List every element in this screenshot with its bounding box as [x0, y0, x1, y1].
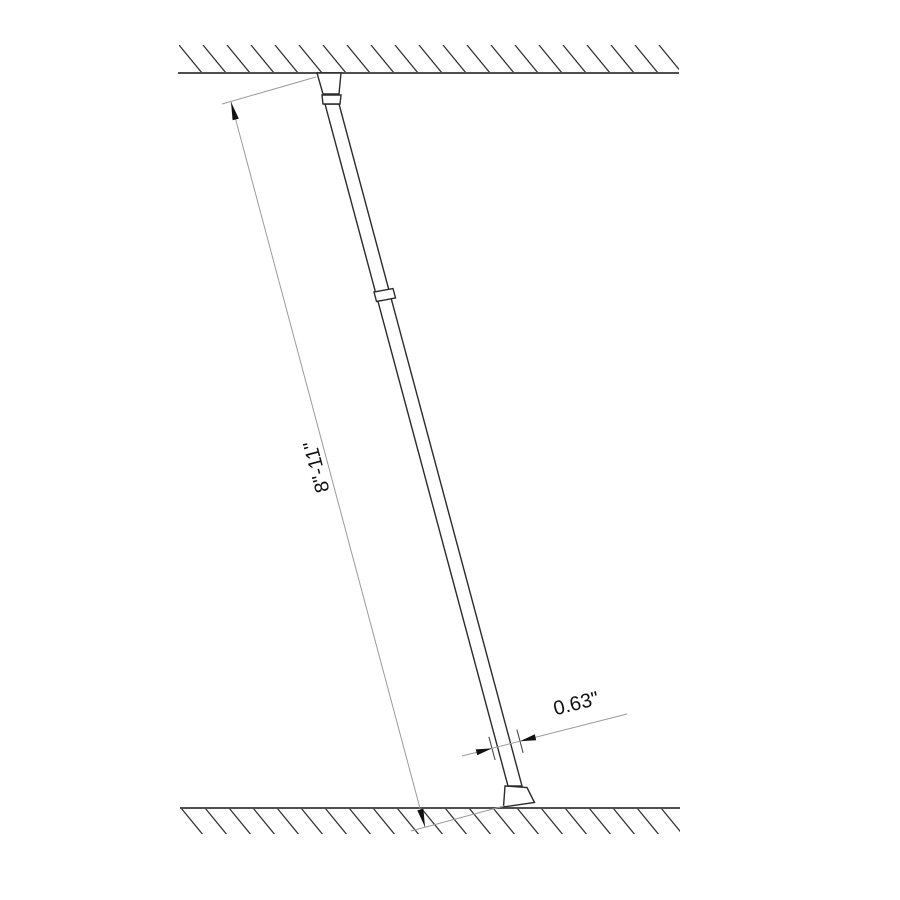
ceiling-surface	[178, 45, 679, 73]
rod-top-cap	[317, 73, 341, 94]
diameter-arrow-right-icon	[520, 734, 536, 741]
rod-technical-drawing: 8"-11" 0.63"	[0, 0, 900, 900]
drawing-canvas: 8"-11" 0.63"	[0, 0, 900, 900]
height-dimension: 8"-11"	[222, 77, 504, 831]
height-arrow-top-icon	[231, 102, 239, 120]
diameter-dimension-label: 0.63"	[551, 688, 601, 720]
floor-hatching	[180, 808, 680, 834]
rod-body	[325, 104, 522, 786]
tension-rod	[317, 73, 535, 807]
floor-surface	[180, 808, 680, 834]
height-dimension-label: 8"-11"	[300, 438, 335, 495]
diameter-arrow-left-icon	[476, 748, 492, 755]
height-dimension-line	[231, 102, 425, 827]
height-extension-line-top	[222, 77, 316, 104]
rod-bottom-foot	[504, 786, 535, 807]
rod-top-collar	[322, 95, 341, 104]
ceiling-hatching	[179, 45, 679, 73]
